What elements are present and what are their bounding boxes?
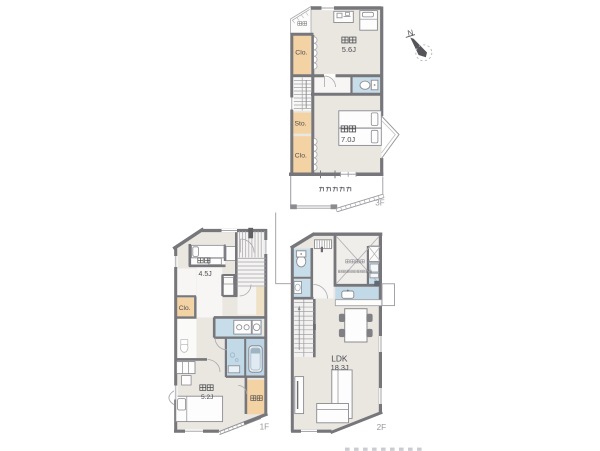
svg-text:2F: 2F: [377, 423, 387, 432]
svg-text:4.5J: 4.5J: [199, 271, 212, 278]
svg-text:Clo.: Clo.: [179, 305, 191, 312]
svg-text:Sto.: Sto.: [295, 121, 307, 128]
svg-text:5.2J: 5.2J: [201, 394, 213, 401]
svg-text:7.0J: 7.0J: [341, 135, 355, 144]
svg-text:1F: 1F: [260, 423, 270, 432]
svg-text:Clo.: Clo.: [295, 50, 307, 57]
svg-text:18.3J: 18.3J: [331, 363, 349, 372]
svg-text:Clo.: Clo.: [295, 153, 307, 160]
svg-text:3F: 3F: [375, 199, 384, 208]
svg-text:LDK: LDK: [331, 354, 348, 364]
svg-text:5.6J: 5.6J: [342, 45, 356, 54]
